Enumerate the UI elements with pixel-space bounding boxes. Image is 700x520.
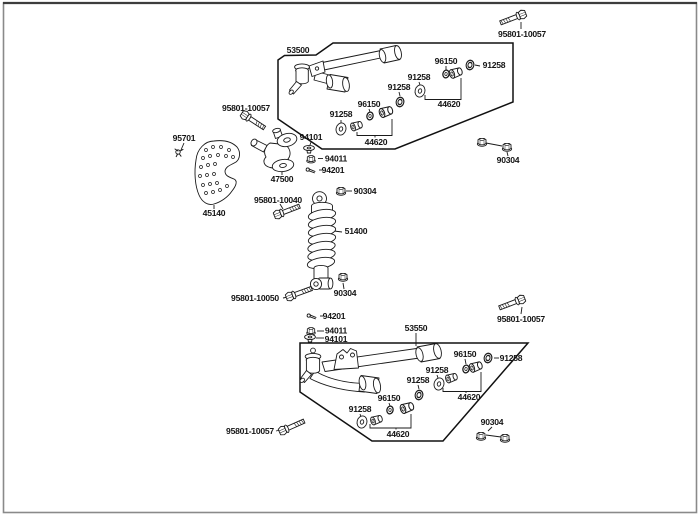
part-label: 94011 xyxy=(325,154,348,164)
grommet-icon-lower-center xyxy=(414,389,425,401)
seal-icon-lower-left xyxy=(386,406,394,415)
bolt-icon-shock-bottom xyxy=(285,284,313,302)
cotter-pin-icon-upper xyxy=(306,168,316,173)
bolt-icon-bottom-left xyxy=(278,417,306,436)
stud-washer-icon-lower xyxy=(305,334,316,342)
nut-icon-right-pair-a xyxy=(477,138,486,146)
grommet-icon-lower-right xyxy=(483,352,494,364)
part-label: 96150 xyxy=(454,349,477,359)
part-label: 53550 xyxy=(405,323,428,333)
knuckle-drawing xyxy=(250,128,298,173)
bushing-icon-upper-left-a xyxy=(350,120,364,131)
bolt-icon-top-right xyxy=(499,9,527,27)
part-label: 91258 xyxy=(426,365,449,375)
bushing-icon-lower-left-a xyxy=(370,414,384,425)
diagram-svg: 95801-10057 53500 91258 96150 91258 4462… xyxy=(0,0,700,520)
part-label: 45140 xyxy=(203,208,226,218)
stud-washer-icon-upper xyxy=(304,145,315,153)
shock-absorber-drawing xyxy=(307,192,337,290)
part-label: 91258 xyxy=(408,72,431,82)
part-label: 90304 xyxy=(481,417,504,427)
bushing-icon-lower-left-b xyxy=(399,401,415,414)
page-frame-border xyxy=(4,3,697,513)
part-label: 94201 xyxy=(322,165,345,175)
part-label: 91258 xyxy=(330,109,353,119)
part-label: 91258 xyxy=(388,82,411,92)
part-label: 94201 xyxy=(323,311,346,321)
nut-icon-lower-94011 xyxy=(307,328,316,335)
part-label: 44620 xyxy=(438,99,461,109)
washer-icon-upper-right xyxy=(414,84,426,98)
part-label: 53500 xyxy=(287,45,310,55)
brake-disc-cover-drawing xyxy=(195,141,240,205)
seal-icon-lower-right xyxy=(462,365,470,374)
part-label: 95801-10050 xyxy=(231,293,279,303)
part-label: 94101 xyxy=(325,334,348,344)
grommet-icon-upper-right xyxy=(465,59,476,71)
nut-icon-right-pair-b xyxy=(502,143,511,151)
part-label: 51400 xyxy=(345,226,368,236)
part-label: 44620 xyxy=(387,429,410,439)
part-label: 91258 xyxy=(483,60,506,70)
bolt-drawings xyxy=(239,9,527,436)
part-label: 95701 xyxy=(173,133,196,143)
part-label: 95801-10057 xyxy=(226,426,274,436)
part-label: 96150 xyxy=(378,393,401,403)
part-label: 95801-10057 xyxy=(222,103,270,113)
part-label: 47500 xyxy=(271,174,294,184)
part-label: 91258 xyxy=(407,375,430,385)
parts-diagram-page: 95801-10057 53500 91258 96150 91258 4462… xyxy=(0,0,700,520)
nut-icon-upper-94011 xyxy=(307,156,316,163)
part-label: 94101 xyxy=(300,132,323,142)
grommet-icon-upper-center xyxy=(395,96,406,108)
part-label: 44620 xyxy=(458,392,481,402)
part-label: 95801-10040 xyxy=(254,195,302,205)
part-label: 90304 xyxy=(354,186,377,196)
part-label: 91258 xyxy=(349,404,372,414)
retainer-clip-icon xyxy=(175,149,183,157)
part-label: 90304 xyxy=(334,288,357,298)
seal-icon-upper-left xyxy=(366,112,374,121)
seal-icon-upper-right xyxy=(442,70,450,79)
bushing-icon-upper-left-b xyxy=(378,105,394,118)
part-label: 91258 xyxy=(500,353,523,363)
part-label: 90304 xyxy=(497,155,520,165)
lower-arm-drawing xyxy=(299,343,443,394)
part-label: 95801-10057 xyxy=(497,314,545,324)
part-label: 44620 xyxy=(365,137,388,147)
nut-icon-shock-top xyxy=(336,187,345,195)
part-label: 96150 xyxy=(358,99,381,109)
bushing-icon-lower-right-b xyxy=(468,361,483,373)
part-label: 95801-10057 xyxy=(498,29,546,39)
washer-icon-upper-left xyxy=(335,122,347,136)
nut-icon-shock-bottom xyxy=(338,273,347,281)
cotter-pin-icon-lower xyxy=(307,314,317,319)
nut-icon-bottom-pair-a xyxy=(476,432,485,440)
nut-icon-bottom-pair-b xyxy=(500,434,509,442)
washer-icon-lower-left xyxy=(356,415,368,429)
part-label: 96150 xyxy=(435,56,458,66)
bushing-icon-upper-right xyxy=(448,67,463,79)
